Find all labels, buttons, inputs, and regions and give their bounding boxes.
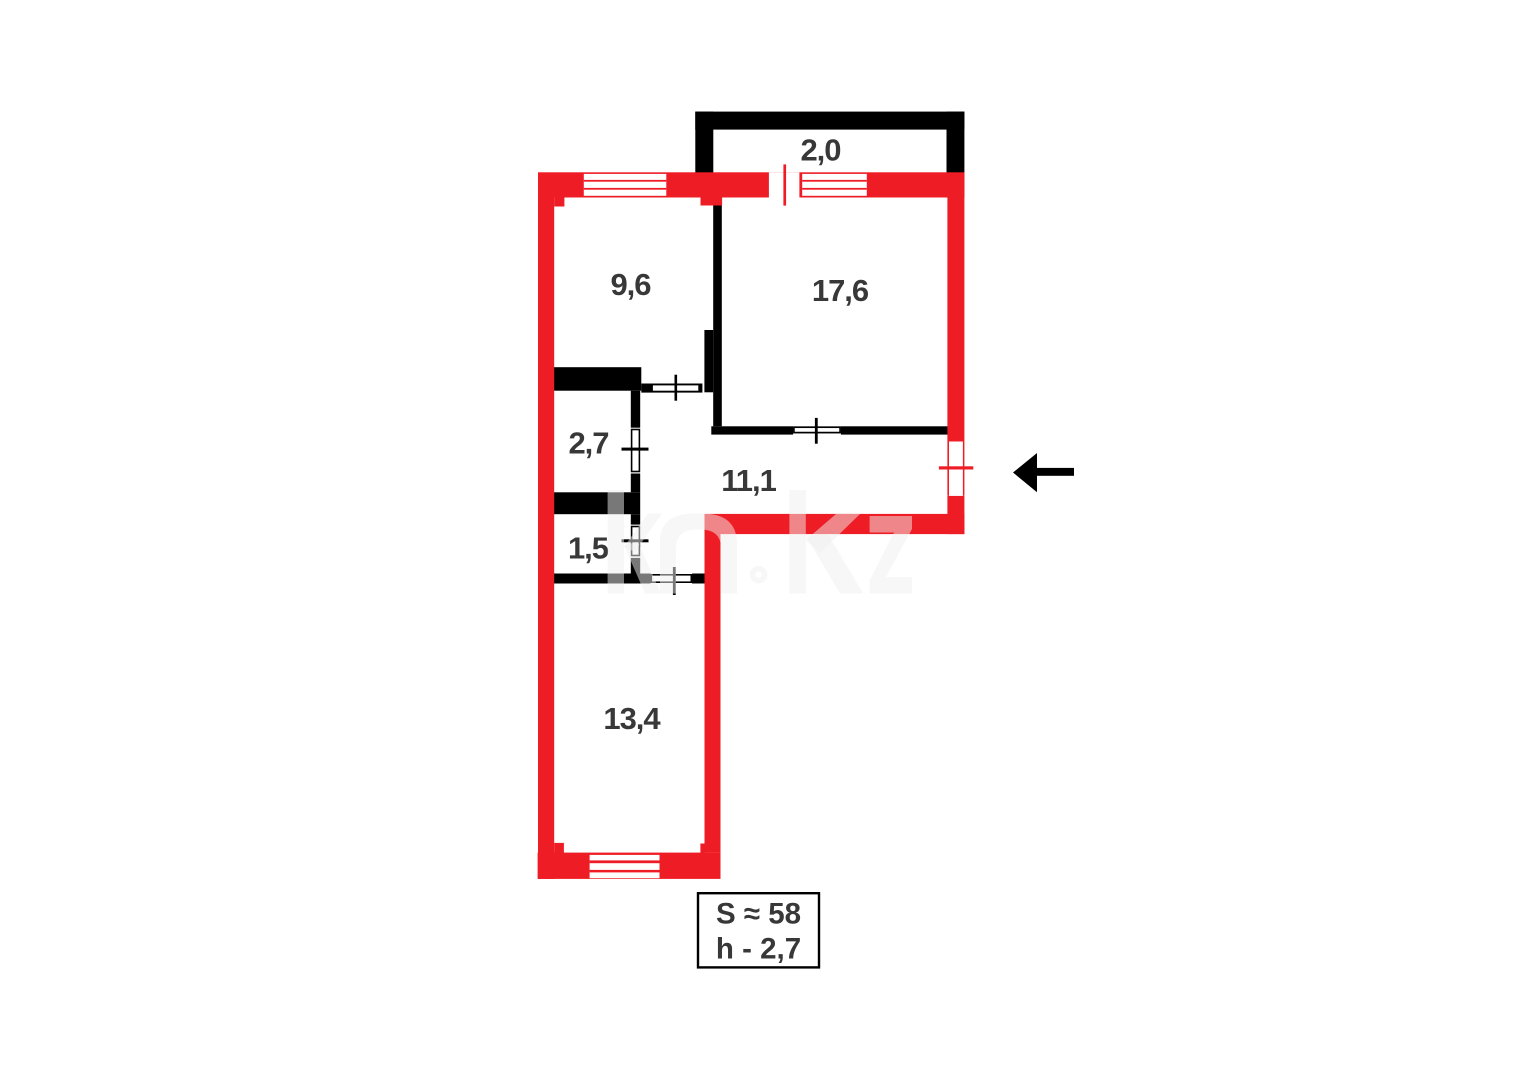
svg-text:11,1: 11,1 xyxy=(721,463,776,498)
svg-text:13,4: 13,4 xyxy=(603,701,661,736)
svg-text:9,6: 9,6 xyxy=(610,267,651,302)
svg-text:1,5: 1,5 xyxy=(568,531,609,566)
svg-text:h - 2,7: h - 2,7 xyxy=(716,933,801,966)
svg-text:2,7: 2,7 xyxy=(568,426,608,461)
svg-text:S ≈ 58: S ≈ 58 xyxy=(716,898,801,931)
svg-text:17,6: 17,6 xyxy=(812,273,869,308)
svg-text:2,0: 2,0 xyxy=(800,133,840,168)
